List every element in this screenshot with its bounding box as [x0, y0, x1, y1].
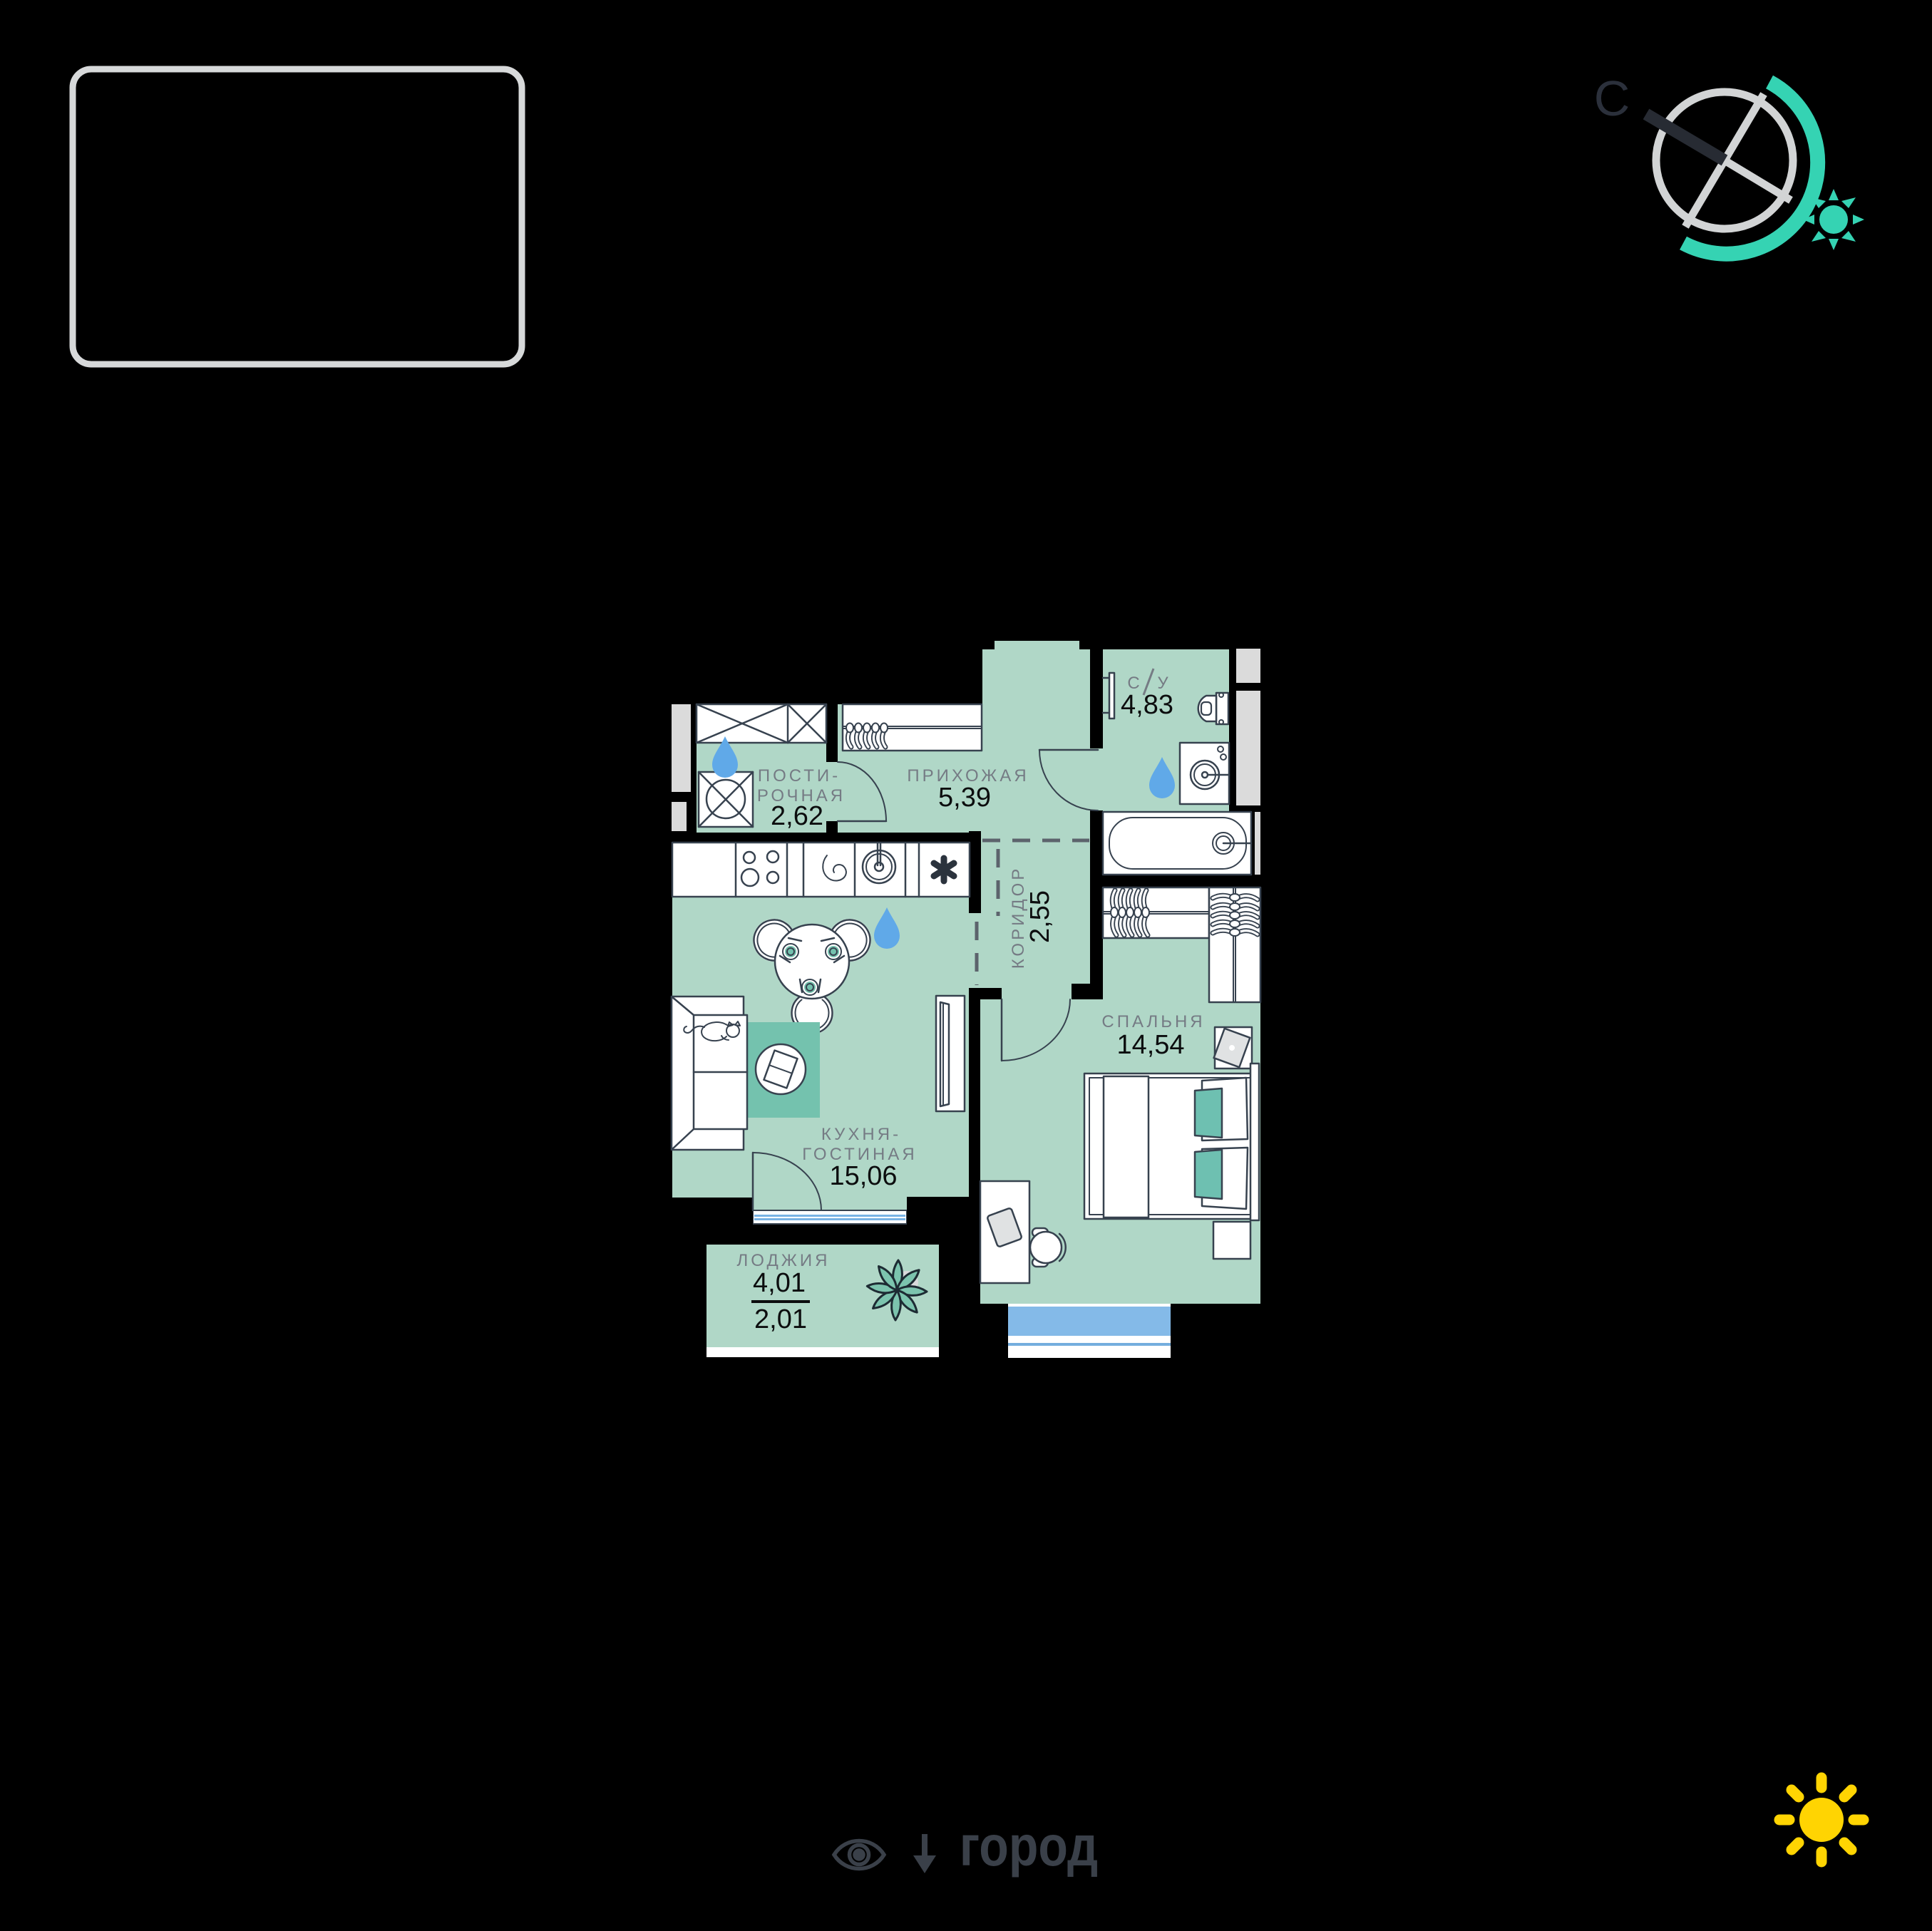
svg-text:5,39: 5,39: [938, 783, 991, 813]
svg-text:С: С: [1594, 71, 1630, 126]
svg-text:СПАЛЬНЯ: СПАЛЬНЯ: [1101, 1012, 1205, 1031]
svg-text:2,62: 2,62: [771, 801, 823, 831]
svg-text:КУХНЯ-: КУХНЯ-: [821, 1125, 901, 1144]
svg-text:15,06: 15,06: [829, 1161, 897, 1191]
svg-text:4,83: 4,83: [1121, 690, 1173, 720]
svg-text:2,01: 2,01: [754, 1304, 807, 1334]
svg-text:ПОСТИ-: ПОСТИ-: [758, 766, 841, 786]
svg-text:4,01: 4,01: [753, 1268, 806, 1298]
svg-text:2,55: 2,55: [1025, 890, 1055, 943]
svg-text:ЛОДЖИЯ: ЛОДЖИЯ: [737, 1251, 831, 1270]
svg-text:14,54: 14,54: [1116, 1030, 1184, 1060]
svg-text:город: город: [960, 1814, 1098, 1878]
